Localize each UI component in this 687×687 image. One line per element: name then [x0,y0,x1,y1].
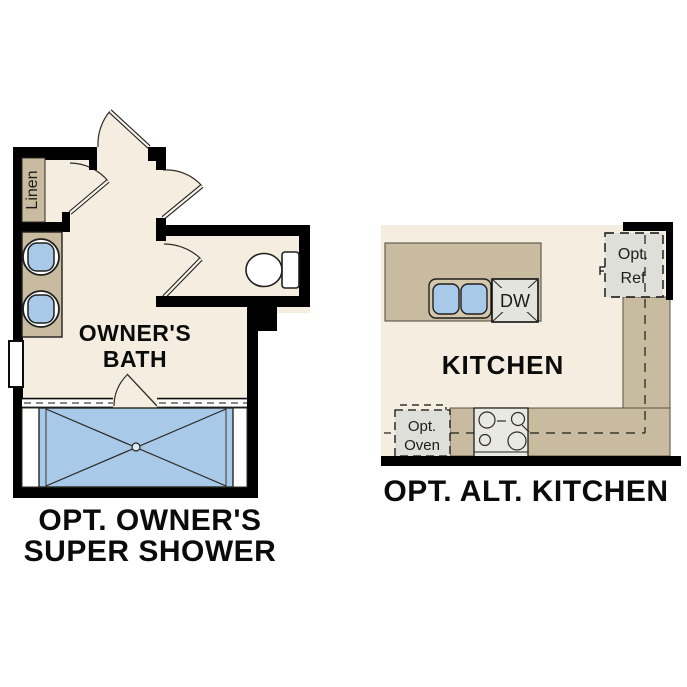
wall-linen-divider [13,222,70,232]
ref-label-line1: Opt. [618,246,648,263]
oven-label-line2: Oven [404,437,440,454]
kitchen-plan-title: OPT. ALT. KITCHEN [383,475,668,508]
dishwasher-label: DW [500,291,530,311]
shower-drain [132,443,140,451]
shower-threshold-right [157,398,247,408]
shower-ledge-left [22,408,39,487]
toilet [246,252,299,288]
vanity-sink-1 [23,239,59,275]
dishwasher: DW [492,279,538,322]
island-sink [429,279,491,318]
wall-mid-pier [156,218,166,241]
shower-ledge-right [233,408,247,487]
kitchen-wall-top [623,222,673,231]
bath-window [9,341,23,387]
shower-threshold-left [22,398,113,408]
wall-top-right-leg [156,147,166,170]
vanity-sink-2 [23,291,59,327]
bath-plan-title-line1: OPT. OWNER'S [38,504,261,537]
oven-label-line1: Opt. [408,418,436,435]
linen-label: Linen [24,170,41,209]
shower-pan [39,408,233,487]
bath-room-label-line1: OWNER'S [79,320,191,346]
wall-linen-hinge-block [62,212,70,222]
wall-bottom [13,487,258,498]
cooktop [474,408,529,457]
wall-right-lower [247,320,258,498]
kitchen-wall-right [666,222,673,300]
wall-toilet-top [156,225,310,236]
owners-bath-plan: Linen OWNER'S BATH OPT. OWNER'S SUPER SH… [9,111,310,568]
kitchen-wall-bottom [381,456,681,466]
opt-ref: Opt. Ref [600,233,663,297]
floorplan-page: Linen OWNER'S BATH OPT. OWNER'S SUPER SH… [0,0,687,687]
opt-oven: Opt. Oven [395,405,450,456]
wall-top-left-end [89,147,97,170]
floorplan-canvas: Linen OWNER'S BATH OPT. OWNER'S SUPER SH… [0,0,687,687]
bath-plan-title-line2: SUPER SHOWER [24,535,277,568]
wall-toilet-bottom [156,296,302,307]
wall-toilet-right [299,225,310,307]
alt-kitchen-plan: DW Opt. Ref Opt. Oven [381,222,681,508]
kitchen-room-label: KITCHEN [442,350,565,380]
bath-room-label-line2: BATH [103,346,167,372]
ref-label-line2: Ref [621,270,646,287]
